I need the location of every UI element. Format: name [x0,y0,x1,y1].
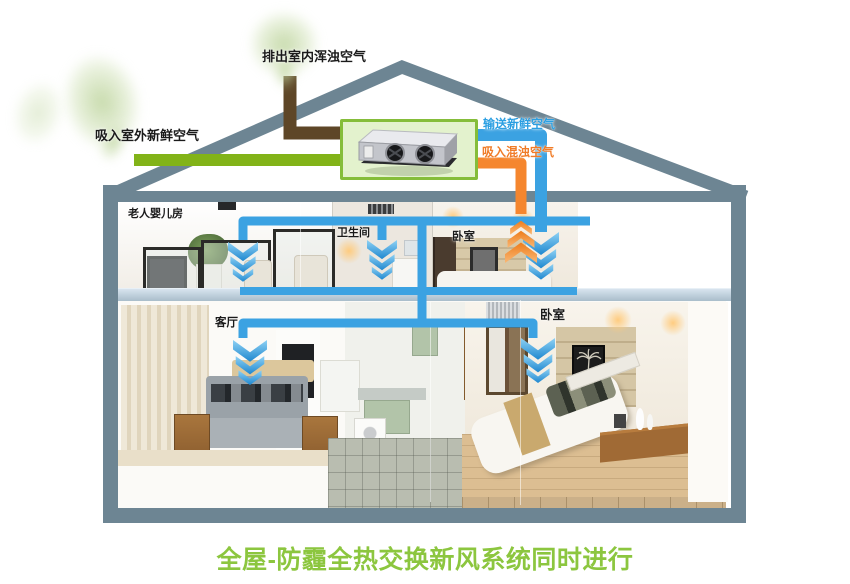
right-wall [731,185,746,523]
caption-title: 全屋-防霾全热交换新风系统同时进行 [0,540,850,576]
airflow-arrow-bedroom-lower [521,338,555,383]
bottom-bar [103,508,746,523]
hrv-unit [343,122,475,177]
room-label-bedroom-lower: 卧室 [540,309,565,322]
label-exhaust-out: 排出室内浑浊空气 [262,50,366,63]
label-return-stale: 吸入混浊空气 [482,146,554,158]
airflow-arrow-living-room [233,340,267,385]
diagram-canvas: 排出室内浑浊空气 吸入室外新鲜空气 输送新鲜空气 吸入混浊空气 老人婴儿房 卫生… [0,0,850,584]
fan-icon [416,145,434,163]
label-supply-fresh: 输送新鲜空气 [483,118,555,130]
unit-shadow [365,166,453,176]
lower-ceiling-duct [243,323,533,338]
label-fresh-in: 吸入室外新鲜空气 [95,129,199,142]
unit-label-sticker [364,146,373,158]
airflow-arrow-elder-room [228,242,258,282]
airflow-arrow-bathroom [367,240,397,280]
room-label-bedroom-upper: 卧室 [452,232,475,244]
fan-icon [386,144,404,162]
return-air-pipe [476,163,521,214]
room-label-bathroom: 卫生间 [337,228,370,239]
fresh-air-intake-pipe [134,154,342,166]
eave-bar [103,191,746,202]
room-label-elder-baby-room: 老人婴儿房 [128,209,183,220]
room-label-living-room: 客厅 [215,318,238,330]
hrv-unit-box [340,119,478,180]
airflow-arrow-return-up [505,221,537,263]
left-wall [103,185,118,523]
